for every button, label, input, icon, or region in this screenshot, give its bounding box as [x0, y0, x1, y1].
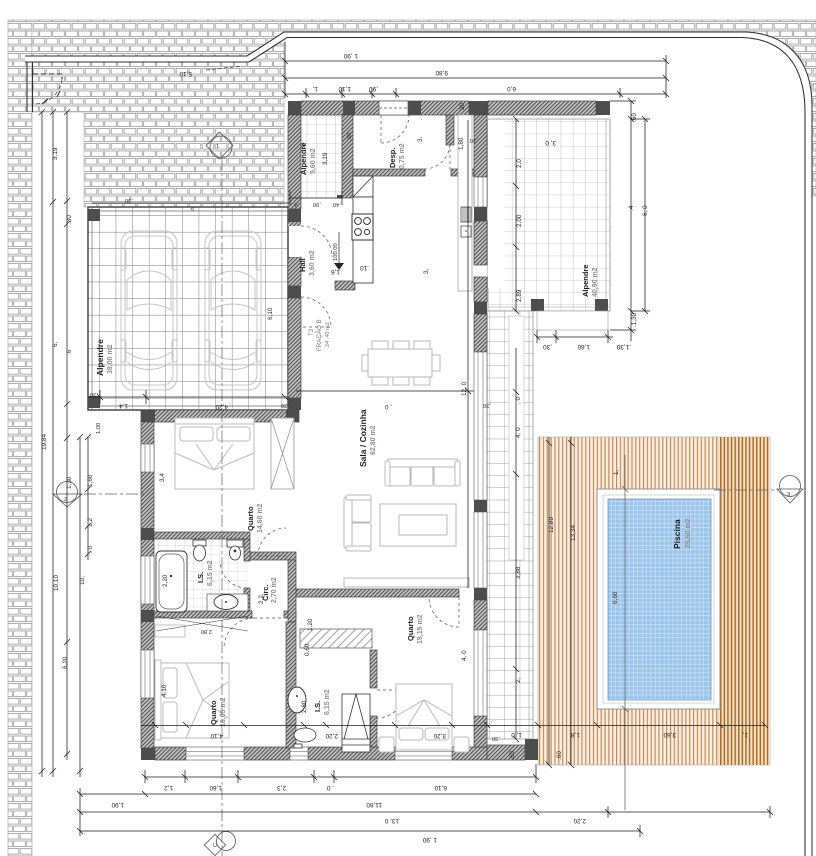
svg-text:.6: .6: [66, 349, 73, 355]
svg-text:Quarto: Quarto: [209, 700, 218, 725]
svg-text:1,2: 1,2: [164, 784, 173, 791]
svg-text:1,: 1,: [613, 469, 620, 475]
svg-text:,90: ,90: [369, 85, 378, 92]
svg-text:13, 0: 13, 0: [384, 817, 399, 824]
svg-text:3,60 m2: 3,60 m2: [309, 250, 316, 276]
svg-text:Sala / Cozinha: Sala / Cozinha: [358, 409, 368, 467]
svg-text:1, 0: 1, 0: [511, 731, 522, 738]
svg-text:6,60: 6,60: [612, 591, 619, 604]
svg-text:4,10: 4,10: [210, 732, 223, 739]
svg-text:Piscina: Piscina: [672, 519, 682, 549]
svg-text:40,90 m2: 40,90 m2: [592, 267, 599, 297]
svg-text:1,: 1,: [312, 85, 318, 92]
svg-text:19,84: 19,84: [41, 434, 48, 450]
svg-text:11,80: 11,80: [366, 801, 382, 808]
svg-text:. 0: . 0: [87, 545, 94, 553]
svg-text:1,: 1,: [742, 731, 748, 738]
svg-text:,30: ,30: [281, 402, 289, 408]
svg-text:13,34: 13,34: [570, 525, 577, 541]
svg-text:.30: .30: [66, 215, 73, 224]
svg-text:,4: ,4: [293, 201, 299, 207]
svg-text:1,60: 1,60: [209, 784, 222, 791]
svg-text:1,4: 1,4: [119, 402, 128, 409]
svg-text:6,15 m2: 6,15 m2: [324, 689, 331, 715]
svg-text:2,: 2,: [515, 677, 522, 683]
svg-text:I.S.: I.S.: [313, 701, 322, 712]
svg-text:1,2: 1,2: [87, 518, 94, 527]
svg-text:12,89: 12,89: [548, 517, 555, 533]
svg-text:,30: ,30: [125, 197, 133, 203]
svg-text:,90: ,90: [313, 201, 321, 207]
svg-text:2,20: 2,20: [573, 817, 586, 824]
svg-text:3,20: 3,20: [433, 732, 446, 739]
svg-text:2,70 m2: 2,70 m2: [271, 577, 278, 603]
svg-text:25,60 m2: 25,60 m2: [685, 518, 692, 548]
svg-text:2,20: 2,20: [162, 574, 169, 587]
svg-text:1,60: 1,60: [87, 474, 94, 487]
svg-text:1,30: 1,30: [66, 476, 73, 489]
svg-text:.10: .10: [360, 264, 369, 271]
svg-text:4, 0: 4, 0: [461, 650, 468, 661]
svg-text:62,80 m2: 62,80 m2: [370, 425, 377, 455]
svg-text:6, 0: 6, 0: [642, 205, 649, 216]
svg-text:FRAÇÃO B: FRAÇÃO B: [316, 319, 323, 351]
svg-text:5,10: 5,10: [179, 70, 192, 77]
svg-text:3,88: 3,88: [515, 566, 522, 579]
svg-text:C: C: [213, 843, 219, 847]
svg-text:2,20: 2,20: [325, 732, 338, 739]
svg-text:5,60 m2: 5,60 m2: [310, 148, 317, 174]
svg-text:,30: ,30: [301, 143, 307, 151]
svg-text:Alpendre: Alpendre: [581, 264, 590, 297]
svg-text:3, 0: 3, 0: [545, 139, 556, 146]
svg-text:6,10: 6,10: [434, 784, 447, 791]
svg-text:,30: ,30: [492, 735, 500, 741]
svg-text:6,15 m2: 6,15 m2: [207, 560, 214, 586]
svg-text:3,: 3,: [417, 136, 424, 142]
svg-text:0,75 m2: 0,75 m2: [399, 143, 406, 169]
svg-text:6,0: 6,0: [507, 85, 516, 92]
svg-text:,30: ,30: [347, 133, 353, 141]
svg-text:1,10: 1,10: [338, 85, 351, 92]
svg-text:10,: 10,: [79, 576, 86, 585]
svg-text:2,89: 2,89: [516, 289, 523, 302]
svg-text:.4: .4: [628, 205, 635, 211]
svg-text:2,00: 2,00: [516, 214, 523, 227]
svg-text:2,0: 2,0: [516, 159, 523, 168]
svg-text:4, 0: 4, 0: [515, 427, 522, 438]
svg-text:1,6: 1,6: [331, 268, 340, 275]
svg-text:, 0: , 0: [384, 403, 392, 410]
svg-text:.60: .60: [556, 751, 563, 760]
svg-text:1,8: 1,8: [571, 731, 580, 738]
svg-text:1 ,90: 1 ,90: [422, 836, 437, 843]
svg-text:1,00: 1,00: [96, 423, 102, 434]
svg-text:Hall: Hall: [298, 258, 307, 272]
svg-text:,30: ,30: [483, 402, 491, 408]
svg-text:14,60 m2: 14,60 m2: [257, 503, 264, 533]
svg-text:19,15 m2: 19,15 m2: [417, 614, 424, 644]
svg-text:1: 1: [216, 144, 219, 150]
svg-text:1,60: 1,60: [577, 343, 590, 350]
svg-text:Quarto: Quarto: [406, 616, 415, 641]
svg-text:3: 3: [787, 492, 790, 498]
svg-text:, 0: , 0: [326, 784, 334, 791]
svg-text:2,2: 2,2: [258, 595, 265, 604]
svg-text:3,: 3,: [423, 268, 430, 274]
svg-text:,30: ,30: [90, 391, 98, 397]
svg-text:3,4: 3,4: [159, 473, 166, 482]
svg-text:9,80: 9,80: [435, 69, 448, 76]
svg-text:Quarto: Quarto: [246, 506, 255, 531]
svg-text:2,80: 2,80: [201, 628, 212, 634]
svg-text:.1,30: .1,30: [631, 312, 638, 327]
svg-text:,30: ,30: [543, 343, 552, 350]
svg-text:100.00: 100.00: [333, 243, 339, 261]
svg-text:1,90: 1,90: [111, 801, 124, 808]
svg-text:1,20: 1,20: [307, 618, 314, 631]
svg-text:10,10: 10,10: [53, 575, 60, 591]
svg-text:1,80: 1,80: [458, 137, 465, 150]
svg-text:24 ,40 m2: 24 ,40 m2: [325, 322, 331, 347]
svg-text:30: 30: [459, 102, 466, 110]
svg-text:3,19: 3,19: [322, 152, 329, 165]
svg-text:Desp.: Desp.: [388, 148, 397, 168]
svg-text:.60: .60: [509, 751, 516, 760]
svg-text:12, 0: 12, 0: [461, 381, 468, 396]
svg-text:3,60: 3,60: [663, 731, 676, 738]
svg-text:6,: 6,: [52, 341, 59, 347]
svg-text:, 0: , 0: [515, 396, 522, 404]
svg-text:4,20: 4,20: [215, 403, 228, 410]
svg-text:4,10: 4,10: [161, 684, 168, 697]
svg-text:,1,30: ,1,30: [616, 343, 631, 350]
svg-text:Alpendre: Alpendre: [95, 339, 105, 376]
svg-text:.60: .60: [631, 113, 638, 122]
svg-text:I.S.: I.S.: [196, 572, 205, 583]
svg-text:1 ,90: 1 ,90: [343, 52, 358, 59]
svg-text:2,3: 2,3: [277, 784, 286, 791]
svg-text:6,10: 6,10: [267, 307, 274, 320]
svg-text:0,60: 0,60: [304, 643, 311, 656]
svg-text:T3: T3: [308, 328, 315, 336]
svg-text:16,05 m2: 16,05 m2: [220, 697, 227, 727]
svg-text:,40: ,40: [333, 201, 341, 207]
svg-text:2,80: 2,80: [301, 700, 308, 713]
svg-text:,30: ,30: [470, 137, 478, 143]
svg-text:6,20: 6,20: [62, 656, 69, 669]
svg-text:38,00 m2: 38,00 m2: [107, 344, 114, 374]
svg-text:3,19: 3,19: [52, 147, 59, 160]
svg-text:,9: ,9: [191, 205, 196, 211]
